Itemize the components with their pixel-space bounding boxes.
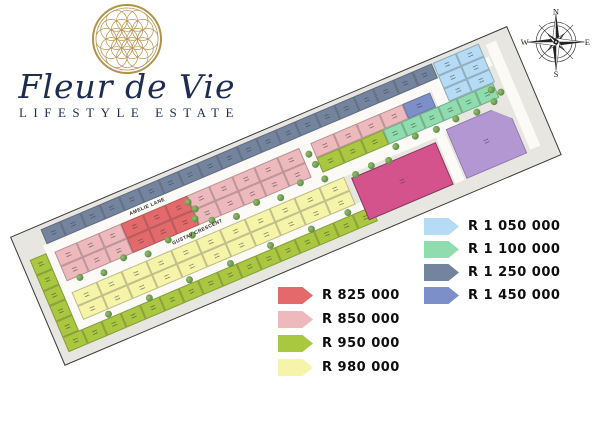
legend-price-label: R 1 100 000 xyxy=(468,242,560,257)
legend-row: R 950 000 xyxy=(278,335,400,352)
compass-e-label: E xyxy=(585,37,590,47)
legend-price-label: R 950 000 xyxy=(322,336,400,351)
compass-w-label: W xyxy=(521,37,530,47)
legend-row: R 980 000 xyxy=(278,359,400,376)
legend-swatch-green xyxy=(278,335,313,352)
legend-row: R 1 100 000 xyxy=(424,241,560,258)
legend-swatch-red xyxy=(278,287,313,304)
legend-left-column: R 825 000R 850 000R 950 000R 980 000 xyxy=(278,287,400,383)
legend-row: R 1 250 000 xyxy=(424,264,560,281)
legend-row: R 1 450 000 xyxy=(424,287,560,304)
logo: Fleur de Vie LIFESTYLE ESTATE xyxy=(8,2,246,121)
page: Fleur de Vie LIFESTYLE ESTATE N E S W AM… xyxy=(0,0,600,425)
compass-n-label: N xyxy=(553,6,559,16)
legend-swatch-periwinkle xyxy=(424,287,459,304)
legend-right-column: R 1 050 000R 1 100 000R 1 250 000R 1 450… xyxy=(424,218,560,310)
logo-title: Fleur de Vie xyxy=(8,70,246,103)
legend-price-label: R 1 450 000 xyxy=(468,288,560,303)
legend-price-label: R 1 250 000 xyxy=(468,265,560,280)
legend-swatch-lightblue xyxy=(424,218,459,235)
compass-rose-icon: N E S W xyxy=(518,4,594,80)
legend-swatch-pink xyxy=(278,311,313,328)
flower-of-life-icon xyxy=(90,2,164,76)
legend-swatch-slate xyxy=(424,264,459,281)
legend-swatch-mint xyxy=(424,241,459,258)
compass-s-label: S xyxy=(554,69,559,79)
legend-price-label: R 980 000 xyxy=(322,360,400,375)
legend-price-label: R 1 050 000 xyxy=(468,219,560,234)
legend-row: R 850 000 xyxy=(278,311,400,328)
legend-row: R 1 050 000 xyxy=(424,218,560,235)
legend-price-label: R 850 000 xyxy=(322,312,400,327)
legend-price-label: R 825 000 xyxy=(322,288,400,303)
legend-swatch-yellow xyxy=(278,359,313,376)
logo-subtitle: LIFESTYLE ESTATE xyxy=(8,105,246,121)
legend-row: R 825 000 xyxy=(278,287,400,304)
